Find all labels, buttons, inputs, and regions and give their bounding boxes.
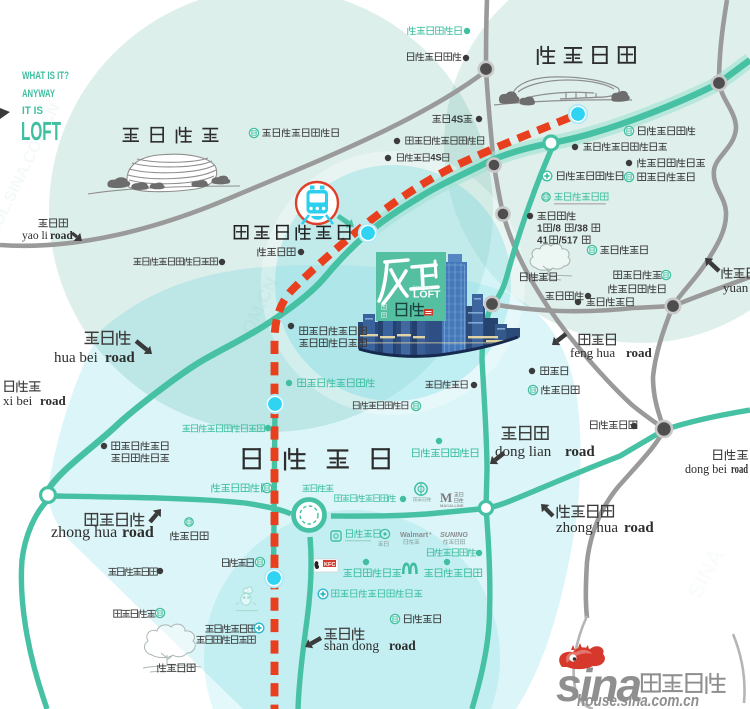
svg-text:LOFT: LOFT — [21, 116, 61, 146]
svg-text:shan dong: shan dong — [324, 638, 379, 653]
svg-text:Walmart: Walmart — [400, 530, 429, 539]
svg-text:KFC: KFC — [324, 562, 335, 568]
svg-text:MACALLINE: MACALLINE — [440, 503, 464, 508]
svg-text:4S: 4S — [430, 153, 441, 163]
svg-text:/517: /517 — [559, 235, 579, 246]
svg-text:road: road — [50, 230, 73, 242]
svg-text:dong bei: dong bei — [685, 461, 727, 476]
svg-text:*: * — [429, 532, 432, 539]
svg-text:yao li: yao li — [22, 230, 48, 242]
svg-text:xi bei: xi bei — [3, 393, 33, 408]
svg-text:/8: /8 — [553, 223, 562, 234]
svg-text:41: 41 — [537, 235, 548, 246]
svg-text:road: road — [389, 638, 416, 653]
svg-text:road: road — [565, 444, 595, 460]
svg-text:LOFT: LOFT — [413, 289, 441, 301]
svg-text:/38: /38 — [574, 223, 588, 234]
svg-text:zhong hua: zhong hua — [556, 520, 618, 536]
svg-text:yuan q: yuan q — [723, 280, 750, 295]
svg-text:road: road — [624, 520, 654, 536]
svg-text:ANYWAY: ANYWAY — [22, 88, 55, 100]
svg-text:house.sina.com.cn: house.sina.com.cn — [577, 692, 699, 709]
svg-text:SUNING: SUNING — [440, 530, 468, 539]
svg-text:feng hua: feng hua — [570, 345, 615, 360]
svg-text:road: road — [122, 524, 154, 541]
svg-text:road: road — [731, 461, 749, 476]
svg-text:dong lian: dong lian — [495, 444, 552, 460]
svg-text:1: 1 — [537, 223, 543, 234]
svg-text:hua bei: hua bei — [54, 350, 98, 366]
svg-text:road: road — [626, 345, 653, 360]
svg-text:4S: 4S — [451, 114, 463, 125]
svg-text:road: road — [105, 350, 135, 366]
svg-text:zhong hua: zhong hua — [51, 524, 117, 541]
svg-text:road: road — [40, 393, 67, 408]
svg-text:WHAT IS IT?: WHAT IS IT? — [22, 70, 69, 82]
